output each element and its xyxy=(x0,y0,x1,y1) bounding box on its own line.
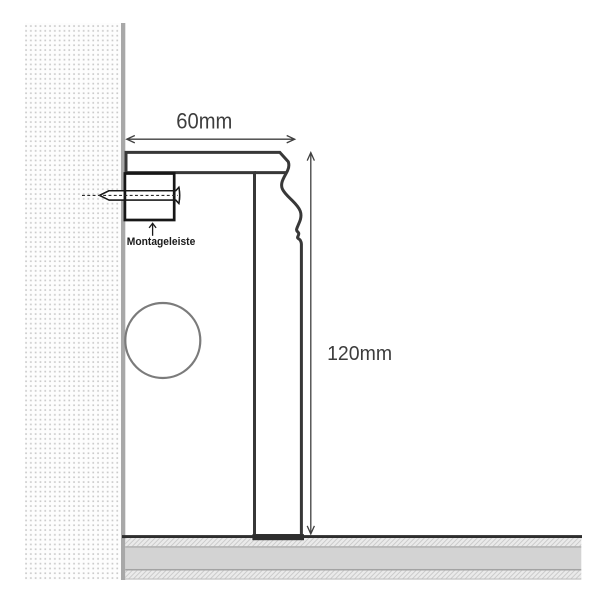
svg-text:120mm: 120mm xyxy=(327,342,392,365)
svg-text:Montageleiste: Montageleiste xyxy=(127,236,196,248)
svg-text:60mm: 60mm xyxy=(176,109,232,134)
